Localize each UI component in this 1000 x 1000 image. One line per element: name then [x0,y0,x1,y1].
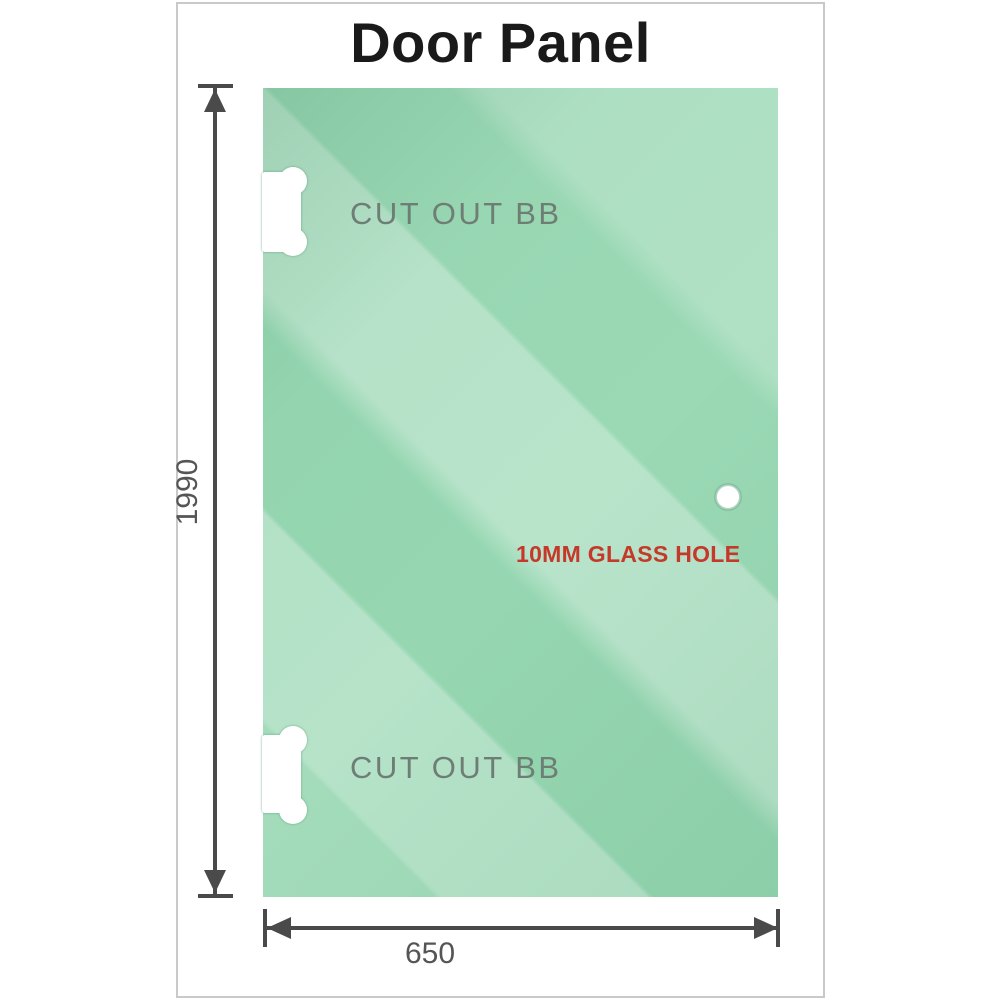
width-dim-left-tick [263,909,267,947]
height-dimension-value: 1990 [171,422,205,562]
cutout-top-notch [262,172,301,252]
height-dim-top-cap [198,84,233,88]
diagram-sheet: Door Panel [176,2,825,998]
height-dim-arrow-down-icon [204,870,226,893]
width-dim-line [267,926,778,930]
width-dim-arrow-right-icon [754,917,778,939]
height-dim-line [213,88,217,894]
glass-hole [716,485,741,510]
width-dimension [263,909,780,947]
cutout-label-bottom: CUT OUT BB [350,750,562,786]
glass-hole-label: 10MM GLASS HOLE [516,541,740,568]
cutout-bottom-notch [262,735,301,813]
diagram-canvas: Door Panel [0,0,1000,1000]
diagram-overlay [178,4,823,996]
width-dimension-value: 650 [368,937,492,971]
width-dim-right-tick [776,909,780,947]
height-dim-bottom-cap [198,894,233,898]
hinge-cutout-top [262,167,307,256]
height-dim-arrow-up-icon [204,89,226,112]
hinge-cutout-bottom [262,726,307,824]
cutout-label-top: CUT OUT BB [350,196,562,232]
width-dim-arrow-left-icon [267,917,291,939]
